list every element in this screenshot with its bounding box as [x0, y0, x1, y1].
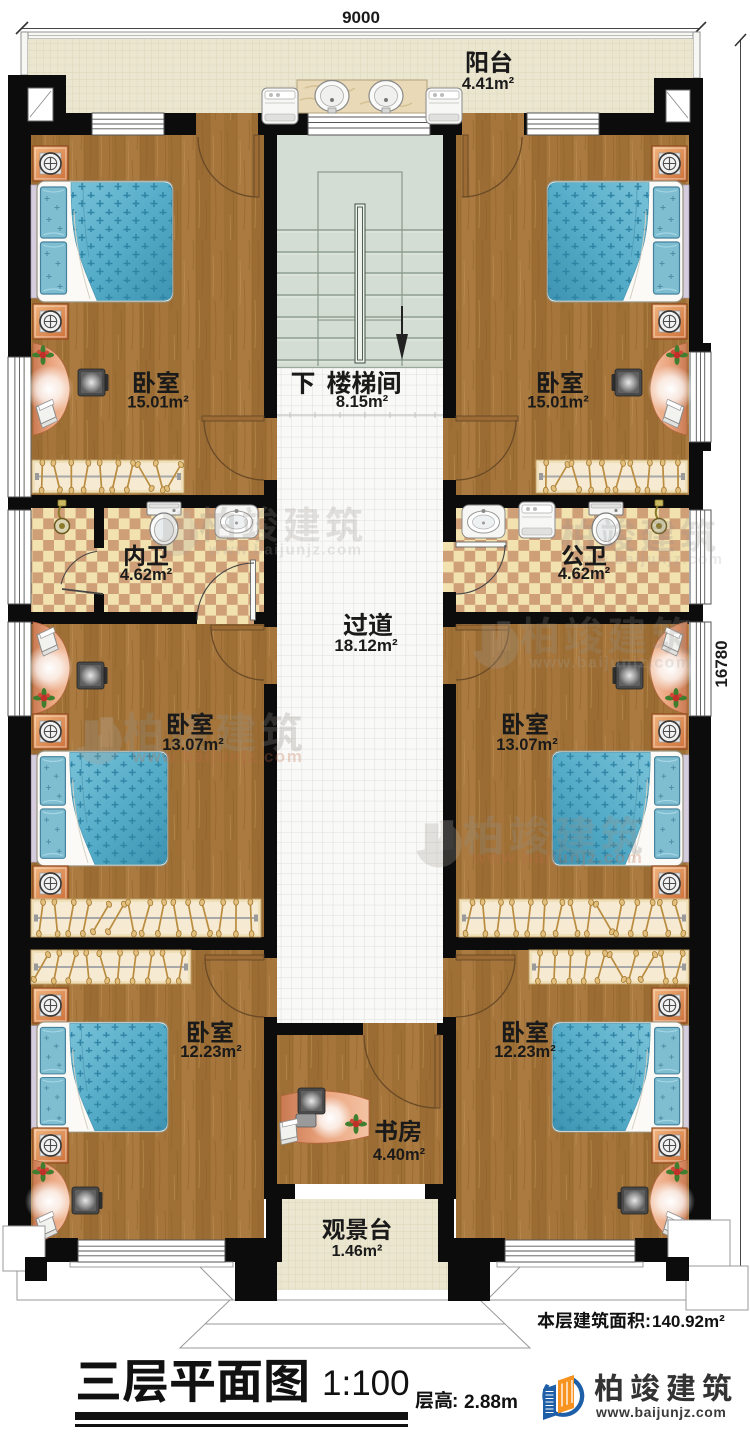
svg-text::: : — [452, 1391, 458, 1412]
svg-text:18.12m²: 18.12m² — [334, 636, 398, 655]
svg-text:9000: 9000 — [342, 8, 380, 27]
svg-text:16780: 16780 — [712, 640, 731, 687]
svg-text:4.62m²: 4.62m² — [558, 565, 611, 583]
svg-text:15.01m²: 15.01m² — [127, 394, 189, 412]
svg-text:www.baijunjz.com: www.baijunjz.com — [208, 542, 362, 559]
svg-text:4.41m²: 4.41m² — [462, 75, 515, 93]
svg-text:4.40m²: 4.40m² — [373, 1146, 426, 1164]
svg-text:1:100: 1:100 — [322, 1364, 410, 1403]
svg-text:12.23m²: 12.23m² — [494, 1043, 556, 1061]
svg-text:13.07m²: 13.07m² — [496, 736, 558, 754]
svg-text:2.88m: 2.88m — [464, 1392, 518, 1413]
svg-text::: : — [645, 1311, 651, 1331]
svg-text:www.baijunjz.com: www.baijunjz.com — [595, 1404, 726, 1420]
svg-text:www.baijunjz.com: www.baijunjz.com — [529, 654, 692, 671]
svg-text:15.01m²: 15.01m² — [527, 394, 589, 412]
svg-text:8.15m²: 8.15m² — [336, 393, 389, 411]
svg-text:1.46m²: 1.46m² — [332, 1243, 383, 1260]
svg-text:140.92m²: 140.92m² — [652, 1312, 725, 1331]
svg-text:4.62m²: 4.62m² — [120, 566, 173, 584]
svg-text:www.baijunjz.com: www.baijunjz.com — [472, 848, 644, 867]
svg-text:13.07m²: 13.07m² — [162, 736, 224, 754]
svg-text:12.23m²: 12.23m² — [180, 1043, 242, 1061]
